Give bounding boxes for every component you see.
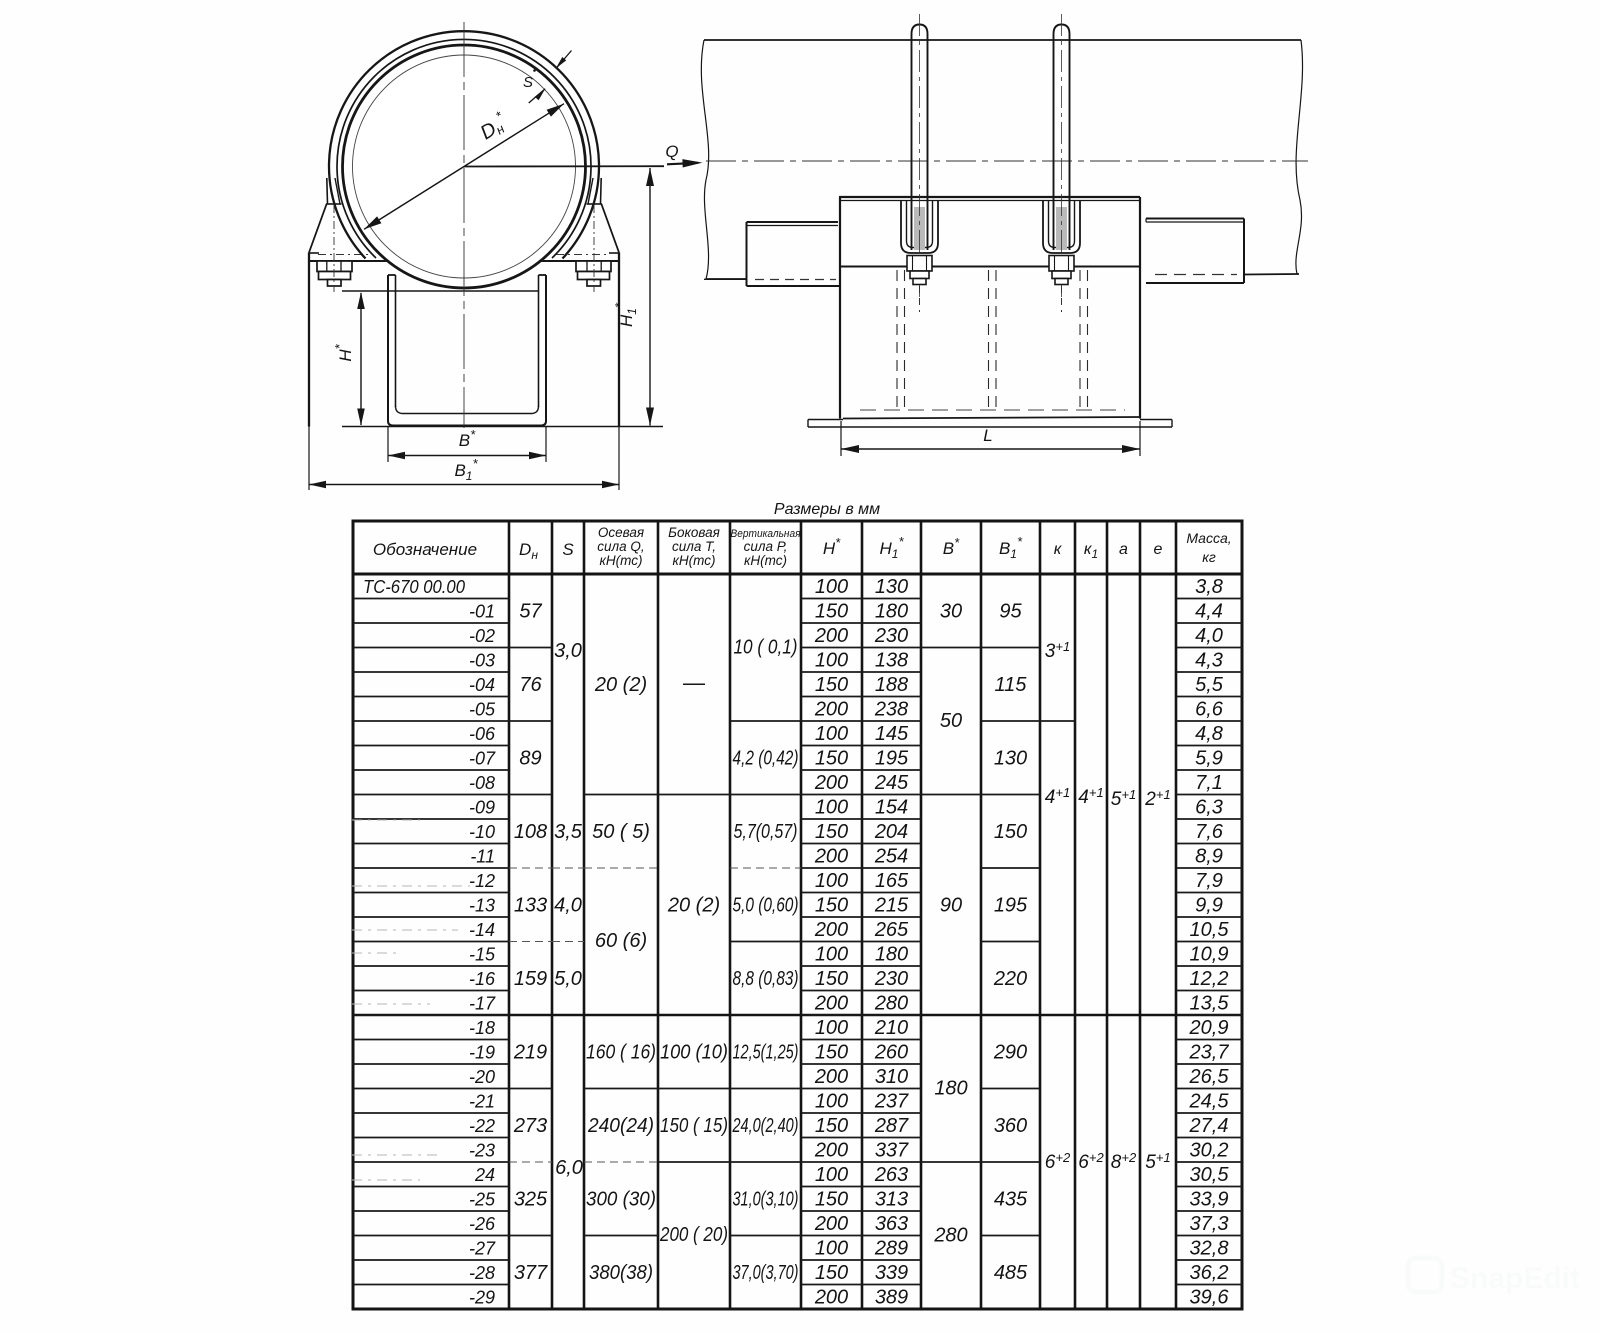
- svg-text:50 ( 5): 50 ( 5): [592, 821, 650, 843]
- svg-text:S: S: [562, 540, 574, 559]
- svg-text:23,7: 23,7: [1189, 1041, 1230, 1063]
- svg-text:B1*: B1*: [454, 456, 478, 483]
- svg-text:B1*: B1*: [999, 534, 1023, 561]
- svg-text:188: 188: [875, 674, 908, 696]
- svg-text:180: 180: [875, 943, 908, 965]
- svg-text:-15: -15: [469, 944, 496, 964]
- svg-text:2+1: 2+1: [1144, 787, 1170, 810]
- svg-text:195: 195: [875, 747, 909, 769]
- svg-text:360: 360: [994, 1115, 1027, 1137]
- svg-text:95: 95: [999, 600, 1022, 622]
- svg-text:24,0(2,40): 24,0(2,40): [732, 1115, 799, 1137]
- svg-text:12,2: 12,2: [1190, 968, 1229, 990]
- svg-text:180: 180: [875, 600, 908, 622]
- svg-text:4,8: 4,8: [1195, 723, 1223, 745]
- svg-text:-14: -14: [469, 920, 495, 940]
- svg-text:200: 200: [814, 1139, 848, 1161]
- svg-text:389: 389: [875, 1286, 908, 1308]
- svg-text:4,0: 4,0: [1195, 625, 1223, 647]
- svg-text:3+1: 3+1: [1045, 639, 1070, 662]
- svg-text:3,0: 3,0: [554, 640, 582, 662]
- svg-text:-01: -01: [469, 601, 495, 621]
- svg-text:485: 485: [994, 1262, 1028, 1284]
- svg-text:4,0: 4,0: [554, 894, 582, 916]
- svg-text:-20: -20: [469, 1067, 495, 1087]
- svg-text:20 (2): 20 (2): [594, 674, 647, 696]
- svg-text:3,5: 3,5: [554, 821, 583, 843]
- svg-text:204: 204: [874, 821, 908, 843]
- svg-text:100: 100: [815, 796, 848, 818]
- svg-text:435: 435: [994, 1188, 1028, 1210]
- svg-text:кН(тс): кН(тс): [673, 553, 716, 568]
- svg-text:39,6: 39,6: [1190, 1286, 1230, 1308]
- svg-text:Размеры в мм: Размеры в мм: [774, 501, 880, 518]
- svg-text:238: 238: [874, 698, 908, 720]
- svg-text:Dн: Dн: [519, 540, 538, 562]
- svg-text:-16: -16: [469, 969, 496, 989]
- svg-text:289: 289: [874, 1237, 908, 1259]
- svg-text:Масса,: Масса,: [1186, 530, 1231, 546]
- svg-text:200: 200: [814, 772, 848, 794]
- svg-text:5,5: 5,5: [1195, 674, 1224, 696]
- svg-text:-29: -29: [469, 1287, 495, 1307]
- svg-text:6,6: 6,6: [1195, 698, 1224, 720]
- svg-text:H1*: H1*: [612, 302, 639, 327]
- svg-text:230: 230: [874, 625, 908, 647]
- svg-text:-03: -03: [469, 650, 495, 670]
- svg-text:100: 100: [815, 723, 848, 745]
- svg-text:300 (30): 300 (30): [586, 1188, 656, 1210]
- svg-text:100: 100: [815, 1017, 848, 1039]
- svg-text:-12: -12: [469, 871, 495, 891]
- svg-text:5,9: 5,9: [1195, 747, 1223, 769]
- svg-text:380(38): 380(38): [589, 1262, 653, 1284]
- svg-text:33,9: 33,9: [1190, 1188, 1229, 1210]
- svg-text:20 (2): 20 (2): [667, 894, 720, 916]
- svg-text:76: 76: [519, 674, 542, 696]
- svg-text:-23: -23: [469, 1140, 495, 1160]
- svg-text:180: 180: [934, 1078, 967, 1100]
- svg-text:Q: Q: [665, 142, 678, 161]
- svg-text:H*: H*: [823, 535, 841, 558]
- svg-text:26,5: 26,5: [1189, 1066, 1230, 1088]
- svg-text:150: 150: [815, 968, 848, 990]
- svg-text:310: 310: [875, 1066, 908, 1088]
- svg-text:100: 100: [815, 649, 848, 671]
- svg-text:200: 200: [814, 698, 848, 720]
- svg-text:Обозначение: Обозначение: [373, 540, 477, 559]
- svg-text:5,0: 5,0: [554, 968, 582, 990]
- svg-text:-18: -18: [469, 1018, 495, 1038]
- svg-text:-11: -11: [470, 846, 495, 866]
- svg-text:к1: к1: [1084, 541, 1098, 561]
- svg-text:5+1: 5+1: [1111, 787, 1136, 810]
- svg-text:240(24): 240(24): [587, 1115, 654, 1137]
- svg-text:160 ( 16): 160 ( 16): [586, 1041, 656, 1063]
- svg-text:-05: -05: [469, 699, 496, 719]
- svg-text:4,4: 4,4: [1195, 600, 1223, 622]
- svg-text:200: 200: [814, 1286, 848, 1308]
- svg-text:150: 150: [815, 600, 848, 622]
- svg-text:290: 290: [993, 1041, 1027, 1063]
- svg-text:3,8: 3,8: [1195, 576, 1223, 598]
- svg-text:а: а: [1119, 541, 1128, 558]
- svg-text:-22: -22: [469, 1116, 495, 1136]
- svg-text:-27: -27: [469, 1238, 496, 1258]
- svg-text:165: 165: [875, 870, 909, 892]
- svg-text:24: 24: [474, 1165, 495, 1185]
- svg-text:12,5(1,25): 12,5(1,25): [733, 1041, 799, 1063]
- svg-text:31,0(3,10): 31,0(3,10): [733, 1188, 799, 1210]
- svg-text:200: 200: [814, 625, 848, 647]
- svg-text:254: 254: [874, 845, 908, 867]
- svg-text:133: 133: [514, 894, 547, 916]
- svg-text:100: 100: [815, 870, 848, 892]
- svg-text:-28: -28: [469, 1263, 495, 1283]
- svg-text:6+2: 6+2: [1045, 1150, 1071, 1173]
- svg-text:6+2: 6+2: [1078, 1150, 1104, 1173]
- svg-text:е: е: [1154, 541, 1163, 558]
- svg-text:32,8: 32,8: [1190, 1237, 1229, 1259]
- svg-text:287: 287: [874, 1115, 909, 1137]
- svg-text:24,5: 24,5: [1189, 1090, 1230, 1112]
- svg-text:Боковая: Боковая: [668, 525, 720, 540]
- svg-text:195: 195: [994, 894, 1028, 916]
- svg-text:5,0 (0,60): 5,0 (0,60): [733, 894, 799, 916]
- svg-text:219: 219: [513, 1041, 547, 1063]
- svg-text:280: 280: [874, 992, 908, 1014]
- svg-text:-04: -04: [469, 675, 495, 695]
- svg-text:154: 154: [875, 796, 908, 818]
- svg-text:60 (6): 60 (6): [595, 930, 647, 952]
- svg-text:150: 150: [815, 894, 848, 916]
- svg-text:сила Q,: сила Q,: [597, 539, 644, 554]
- svg-text:100: 100: [815, 576, 848, 598]
- svg-text:5,7(0,57): 5,7(0,57): [734, 821, 798, 843]
- svg-text:7,9: 7,9: [1195, 870, 1223, 892]
- svg-text:150 ( 15): 150 ( 15): [660, 1115, 728, 1137]
- svg-text:150: 150: [815, 1115, 848, 1137]
- svg-text:363: 363: [875, 1213, 908, 1235]
- svg-text:27,4: 27,4: [1189, 1115, 1229, 1137]
- svg-text:100 (10): 100 (10): [660, 1041, 728, 1063]
- svg-text:150: 150: [815, 747, 848, 769]
- svg-text:150: 150: [815, 674, 848, 696]
- svg-text:-21: -21: [469, 1091, 495, 1111]
- svg-text:6,3: 6,3: [1195, 796, 1223, 818]
- svg-text:100: 100: [815, 1164, 848, 1186]
- svg-text:30,5: 30,5: [1190, 1164, 1230, 1186]
- svg-text:265: 265: [874, 919, 909, 941]
- svg-text:273: 273: [513, 1115, 547, 1137]
- svg-text:-13: -13: [469, 895, 495, 915]
- svg-text:138: 138: [875, 649, 908, 671]
- svg-text:150: 150: [815, 1262, 848, 1284]
- svg-text:150: 150: [815, 1188, 848, 1210]
- svg-text:H*: H*: [332, 343, 355, 361]
- svg-text:8,9: 8,9: [1195, 845, 1223, 867]
- svg-text:4+1: 4+1: [1078, 785, 1103, 808]
- svg-text:-17: -17: [469, 993, 496, 1013]
- svg-text:159: 159: [514, 968, 547, 990]
- svg-text:-08: -08: [469, 773, 495, 793]
- svg-text:145: 145: [875, 723, 909, 745]
- svg-text:-25: -25: [469, 1189, 496, 1209]
- svg-text:10,5: 10,5: [1190, 919, 1230, 941]
- svg-text:37,0(3,70): 37,0(3,70): [733, 1262, 799, 1284]
- svg-text:215: 215: [874, 894, 909, 916]
- svg-text:36,2: 36,2: [1190, 1262, 1229, 1284]
- svg-text:-09: -09: [469, 797, 495, 817]
- svg-text:260: 260: [874, 1041, 908, 1063]
- svg-text:10 ( 0,1): 10 ( 0,1): [734, 637, 798, 659]
- svg-text:20,9: 20,9: [1189, 1017, 1229, 1039]
- svg-text:200: 200: [814, 845, 848, 867]
- svg-text:-07: -07: [469, 748, 496, 768]
- svg-text:Осевая: Осевая: [598, 525, 644, 540]
- svg-text:7,6: 7,6: [1195, 821, 1224, 843]
- svg-text:-10: -10: [469, 822, 495, 842]
- svg-text:339: 339: [875, 1262, 908, 1284]
- svg-text:-26: -26: [469, 1214, 496, 1234]
- svg-text:200: 200: [814, 1213, 848, 1235]
- svg-text:280: 280: [933, 1225, 967, 1247]
- svg-text:6,0: 6,0: [555, 1157, 583, 1179]
- svg-text:313: 313: [875, 1188, 908, 1210]
- svg-text:-06: -06: [469, 724, 496, 744]
- svg-text:8,8 (0,83): 8,8 (0,83): [733, 968, 799, 990]
- svg-text:377: 377: [514, 1262, 548, 1284]
- svg-text:4+1: 4+1: [1045, 785, 1070, 808]
- svg-text:100: 100: [815, 943, 848, 965]
- svg-text:200: 200: [814, 1066, 848, 1088]
- svg-text:150: 150: [994, 821, 1027, 843]
- svg-text:150: 150: [815, 1041, 848, 1063]
- svg-text:4,2 (0,42): 4,2 (0,42): [733, 747, 799, 769]
- svg-text:115: 115: [995, 674, 1028, 696]
- svg-text:9,9: 9,9: [1195, 894, 1223, 916]
- svg-text:B*: B*: [943, 535, 960, 558]
- svg-text:B*: B*: [459, 427, 476, 450]
- svg-text:7,1: 7,1: [1195, 772, 1223, 794]
- svg-text:-02: -02: [469, 626, 495, 646]
- svg-text:108: 108: [514, 821, 547, 843]
- svg-text:230: 230: [874, 968, 908, 990]
- svg-text:37,3: 37,3: [1190, 1213, 1229, 1235]
- svg-text:L: L: [983, 426, 992, 445]
- svg-text:150: 150: [815, 821, 848, 843]
- svg-text:325: 325: [514, 1188, 548, 1210]
- svg-text:4,3: 4,3: [1195, 649, 1223, 671]
- svg-text:-19: -19: [469, 1042, 495, 1062]
- svg-text:30,2: 30,2: [1190, 1139, 1229, 1161]
- svg-text:к: к: [1054, 541, 1063, 558]
- svg-text:S: S: [523, 74, 533, 91]
- svg-text:210: 210: [874, 1017, 908, 1039]
- svg-text:5+1: 5+1: [1145, 1150, 1170, 1173]
- svg-text:200: 200: [814, 992, 848, 1014]
- svg-text:130: 130: [994, 747, 1027, 769]
- svg-text:сила Р,: сила Р,: [744, 539, 788, 554]
- svg-text:263: 263: [874, 1164, 908, 1186]
- svg-text:SnapEdit: SnapEdit: [1450, 1262, 1580, 1295]
- svg-text:245: 245: [874, 772, 909, 794]
- svg-text:220: 220: [993, 968, 1027, 990]
- svg-text:ТС-670 00.00: ТС-670 00.00: [363, 577, 465, 597]
- svg-text:89: 89: [519, 747, 541, 769]
- svg-text:237: 237: [874, 1090, 909, 1112]
- svg-text:кН(тс): кН(тс): [600, 553, 643, 568]
- svg-text:кН(тс): кН(тс): [744, 553, 787, 568]
- svg-text:57: 57: [519, 600, 542, 622]
- svg-text:337: 337: [875, 1139, 909, 1161]
- svg-text:8+2: 8+2: [1111, 1150, 1137, 1173]
- svg-text:200: 200: [814, 919, 848, 941]
- svg-text:13,5: 13,5: [1190, 992, 1230, 1014]
- svg-text:200 ( 20): 200 ( 20): [659, 1224, 728, 1246]
- svg-text:50: 50: [940, 710, 962, 732]
- svg-text:сила Т,: сила Т,: [672, 539, 716, 554]
- svg-text:кг: кг: [1202, 549, 1216, 565]
- svg-text:100: 100: [815, 1237, 848, 1259]
- svg-text:90: 90: [940, 894, 962, 916]
- svg-text:30: 30: [940, 600, 962, 622]
- svg-text:10,9: 10,9: [1190, 943, 1229, 965]
- svg-text:100: 100: [815, 1090, 848, 1112]
- svg-text:H1*: H1*: [879, 534, 904, 561]
- svg-text:130: 130: [875, 576, 908, 598]
